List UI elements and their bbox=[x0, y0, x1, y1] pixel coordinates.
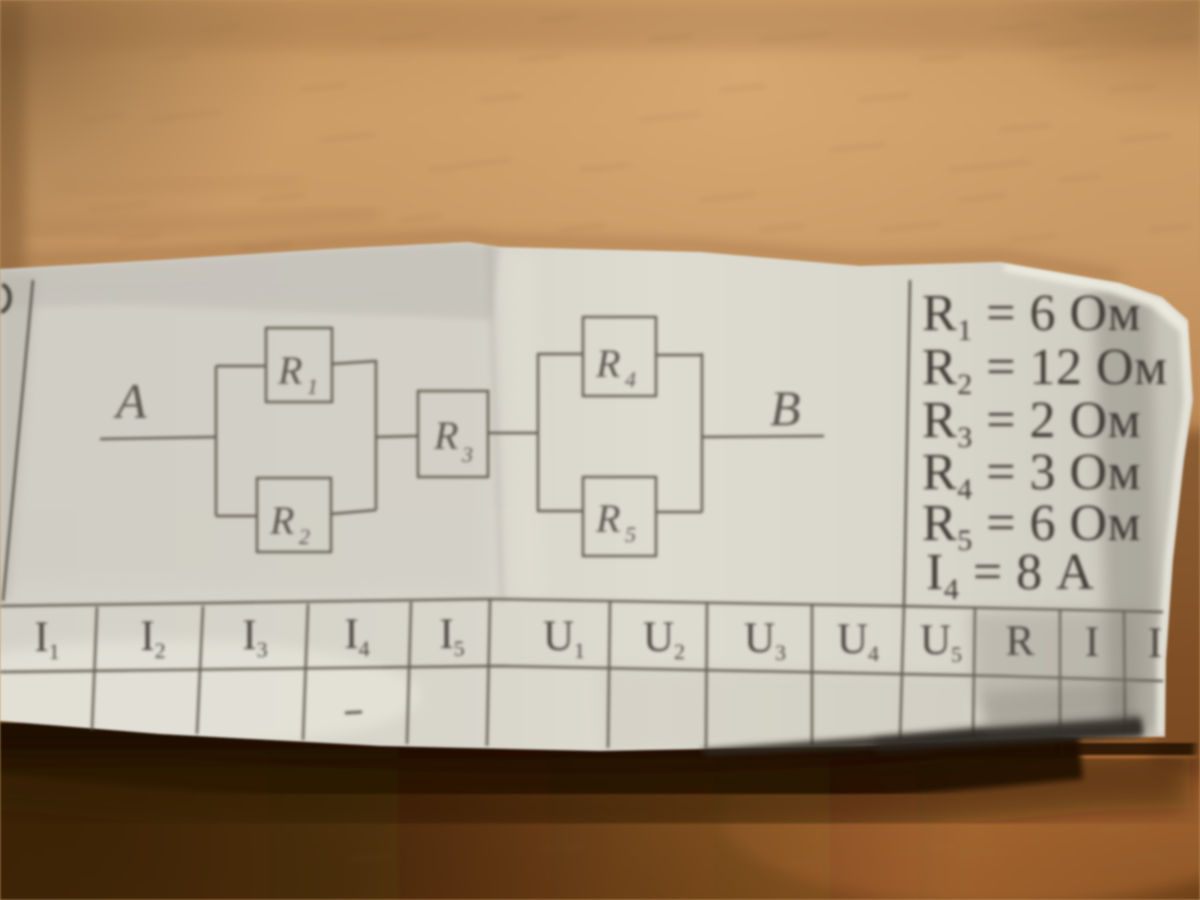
svg-text:R: R bbox=[1006, 618, 1035, 665]
svg-text:5: 5 bbox=[625, 522, 636, 547]
svg-text:A: A bbox=[113, 373, 147, 429]
svg-text:1: 1 bbox=[307, 374, 318, 399]
svg-text:R: R bbox=[269, 498, 294, 543]
svg-text:2: 2 bbox=[299, 524, 310, 549]
svg-text:B: B bbox=[770, 380, 801, 436]
svg-text:R: R bbox=[277, 348, 302, 393]
svg-text:R: R bbox=[595, 496, 620, 541]
svg-text:I: I bbox=[1148, 620, 1162, 667]
svg-text:R: R bbox=[433, 413, 458, 458]
svg-text:R: R bbox=[595, 341, 620, 386]
svg-text:4: 4 bbox=[625, 367, 636, 392]
svg-text:3: 3 bbox=[461, 442, 473, 467]
svg-text:I: I bbox=[1085, 619, 1099, 666]
svg-text:R1 = 6 Ом: R1 = 6 Ом bbox=[922, 285, 1141, 347]
